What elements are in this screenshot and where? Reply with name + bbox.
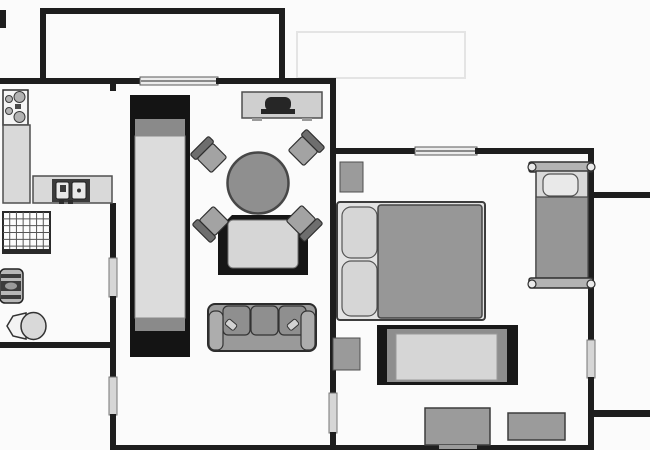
stove-burner-large-2 [14, 112, 25, 123]
single-bed-pillow [543, 174, 578, 196]
cropped-wall-stub [0, 10, 6, 28]
dresser-right [508, 413, 565, 440]
wardrobe-shelf-top [135, 119, 185, 136]
kitchen-wall-stub [110, 84, 116, 91]
bedknob-top-left [528, 163, 536, 171]
bench-top [396, 334, 497, 380]
stove-burner-large-1 [14, 92, 25, 103]
floor-plan [0, 0, 650, 450]
bedroom-wall-top-left [333, 148, 417, 154]
double-bed-pillow-top [342, 207, 377, 258]
double-bed-duvet [378, 205, 482, 318]
living-bedroom-door [329, 393, 337, 433]
stove-burner-small-2 [6, 108, 13, 115]
cabinet-foot-left [252, 118, 262, 121]
wardrobe-body [135, 136, 185, 318]
tv-base [261, 109, 295, 114]
bedroom-wall-top-right [475, 148, 594, 154]
left-wall-upper [110, 203, 116, 259]
dresser-left-foot [439, 445, 477, 449]
toilet-bowl [21, 313, 46, 340]
bedknob-bottom-left [528, 280, 536, 288]
washer-stripe-1 [1, 274, 21, 278]
balcony-wall-right [279, 8, 285, 82]
hallway-door [109, 377, 117, 415]
shower-edge [3, 249, 50, 253]
tv-screen [265, 97, 291, 111]
double-bed-pillow-bottom [342, 261, 377, 316]
balcony-wall-top [40, 8, 285, 14]
single-bed-footboard [529, 278, 593, 288]
wardrobe-shelf-bottom [135, 318, 185, 331]
right-wall-upper [588, 148, 594, 341]
washer-drum [5, 283, 17, 290]
sofa-arm-left [209, 311, 223, 350]
balcony-right-door [587, 340, 595, 378]
sofa-arm-right [301, 311, 315, 350]
dresser-left [425, 408, 490, 445]
cabinet-foot-right [302, 118, 312, 121]
balcony-right-wall-top [594, 192, 650, 198]
bathroom-door [109, 258, 117, 297]
bedknob-top-right [587, 163, 595, 171]
armchair-cushion [228, 220, 298, 268]
wall-chest [333, 338, 360, 370]
washer-stripe-3 [1, 295, 21, 299]
top-wall-right [216, 78, 336, 84]
left-wall-mid [110, 296, 116, 378]
top-wall-left [0, 78, 142, 84]
sink-knob-right [68, 200, 73, 204]
dining-table [228, 153, 289, 214]
stove-grill [15, 104, 21, 109]
left-wall-lower [110, 414, 116, 450]
floor-plan-svg [0, 0, 650, 450]
single-bed-duvet [536, 197, 588, 279]
kitchen-counter [3, 125, 30, 203]
sink-knob-left [59, 200, 64, 204]
sink-drain [77, 189, 81, 193]
right-wall-lower [588, 377, 594, 450]
sink-faucet [60, 185, 66, 192]
bedknob-bottom-right [587, 280, 595, 288]
nightstand [340, 162, 363, 192]
bottom-wall [110, 445, 594, 450]
balcony-wall-left [40, 8, 46, 82]
sofa-cushion-2 [251, 306, 278, 335]
bathroom-wall-bottom [0, 342, 116, 348]
stove-burner-small-1 [6, 96, 13, 103]
balcony-right-wall-bottom [594, 410, 650, 417]
